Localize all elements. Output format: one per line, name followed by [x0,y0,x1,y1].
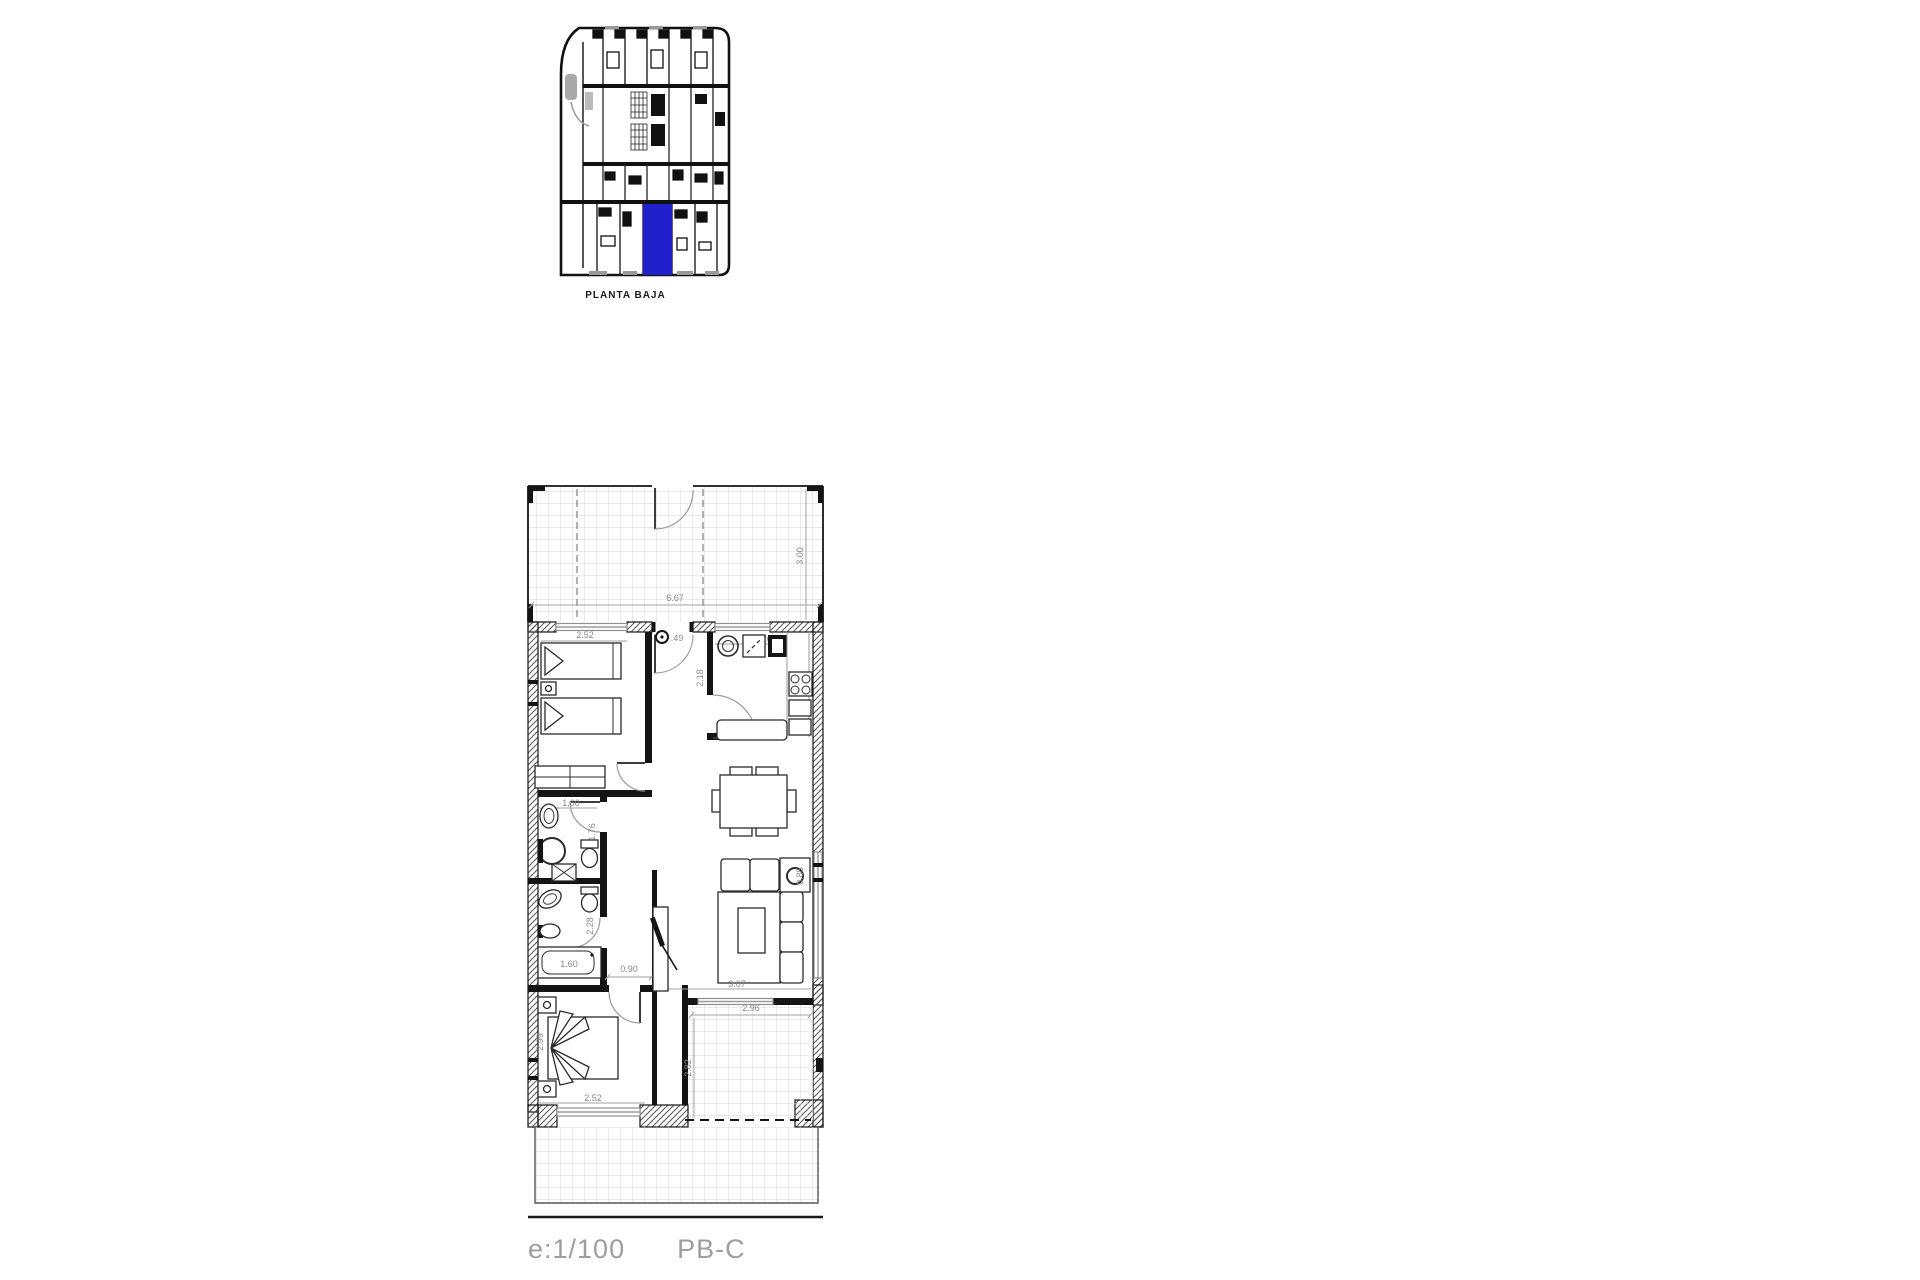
sofa-cushion [780,952,803,983]
patio [535,1127,818,1203]
kitchen-fridge [789,719,811,735]
living-dining: 0.85 3.07 [650,720,811,991]
footer-scale-row: e:1/100PB-C [528,1234,928,1265]
dim-terrace-depth: 3.00 [795,547,805,565]
dim-bath1-width: 1.60 [562,798,580,808]
bedroom1: 2.52 [535,630,627,788]
overview-wall-band-3 [561,200,729,204]
dim-living-width: 3.07 [728,979,746,989]
coffee-table [738,908,765,953]
toilet-1 [581,840,598,848]
overview-highlighted-unit [643,204,672,275]
dim-terrace-width: 6.67 [666,593,684,603]
overview-elevator [651,94,665,116]
overview-vehicle [565,74,577,100]
kitchen-sink [718,636,738,656]
dim-kitchen-depth: 2.18 [695,669,705,687]
washbasin-2 [536,886,565,912]
sofa-back-cushion [750,859,779,891]
sofa-cushion [780,892,803,922]
dim-bedroom2-depth: 2.99 [535,1033,545,1051]
overview-wall-band-2 [583,162,729,166]
bidet [540,924,560,938]
bedroom2: 2.99 2.52 [535,997,645,1103]
dining-chair [787,790,796,812]
patio-tiles [535,1127,818,1203]
terrace-lower-tiles [688,1005,813,1120]
entry-hall: .49 [656,631,683,643]
window-living-terrace-slider [698,999,773,1005]
bathroom1: 1.60 1.76 [538,798,598,881]
dim-hall-width: 0.90 [620,964,638,974]
window-kitchen [715,624,770,631]
dim-sofa-corner: 0.85 [795,867,805,885]
window-living-right [814,852,822,978]
dim-entry: .49 [671,633,684,643]
dim-bathtub-length: 1.60 [560,959,578,969]
dim-bath2-depth: 2.28 [585,917,595,935]
dim-bedroom2-width: 2.52 [584,1093,602,1103]
dim-terrace2-depth: 2.82 [683,1059,693,1077]
overview-wall-band-1 [583,84,729,88]
toilet-2 [581,887,598,894]
sofa-cushion [780,922,803,952]
dim-bath1-depth: 1.76 [587,823,597,841]
entry-door [652,622,693,673]
scale-text: e:1/100 [528,1234,625,1264]
dining-table [720,775,787,828]
door-bedroom1 [617,763,645,791]
sideboard [717,720,787,740]
window-bedroom2 [557,1108,640,1116]
dim-bedroom1-width: 2.52 [576,630,594,640]
dim-terrace2-width: 2.96 [742,1003,760,1013]
terrace-top: 6.67 3.00 [528,484,823,622]
unit-code: PB-C [677,1234,746,1264]
overview-plan-title: PLANTA BAJA [553,290,698,301]
hall: 0.90 [605,964,654,980]
bathroom2: 2.28 1.60 [536,886,601,978]
sofa-back-cushion [721,859,750,891]
main-floor-plan: 6.67 3.00 [525,480,827,1226]
terrace-lower: 2.96 2.82 [683,1003,813,1120]
overview-building-plan [545,22,737,288]
kitchen-oven [789,700,811,716]
page: PLANTA BAJA [0,0,1920,1280]
washbasin-1 [540,804,558,828]
